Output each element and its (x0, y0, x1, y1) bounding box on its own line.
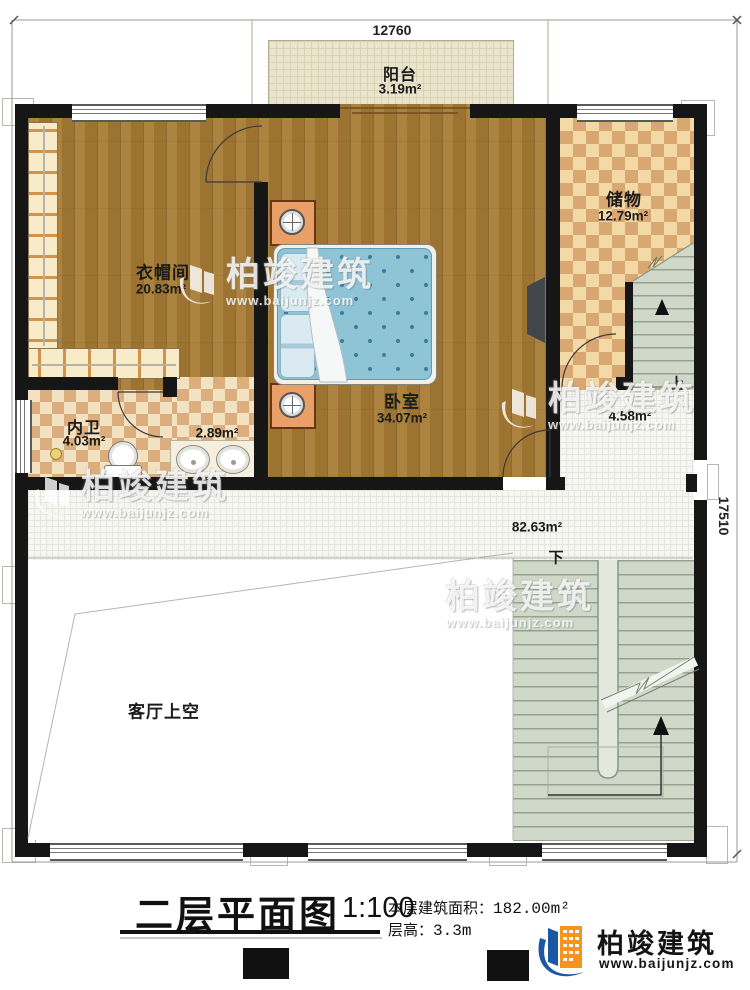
window (542, 843, 667, 861)
room-area-bathroom: 4.03m² (63, 434, 106, 449)
living-void-area (28, 560, 513, 840)
floor-area-label: 本层建筑面积： (388, 900, 493, 917)
floor-area-value: 182.00m² (493, 900, 570, 918)
wall (15, 118, 28, 400)
footer-black-square (243, 948, 289, 979)
stair-down-label: 下 (548, 547, 563, 568)
wall-stair-stub (625, 282, 633, 390)
room-area-hall: 82.63m² (512, 520, 562, 535)
floor-height-label: 层高： (388, 922, 433, 939)
wall (694, 118, 707, 460)
sink (176, 445, 210, 474)
room-label-storage: 储物 (606, 186, 642, 211)
dimension-top: 12760 (373, 22, 412, 38)
wall-stub (163, 377, 177, 397)
title-block: 二层平面图 1:100 本层建筑面积：182.00m² 层高：3.3m 柏竣建筑… (0, 880, 750, 990)
room-label-void: 客厅上空 (128, 698, 200, 723)
lamp-icon (279, 392, 305, 418)
room-area-storage: 12.79m² (598, 209, 648, 224)
floor-drain (50, 448, 62, 460)
wall (15, 104, 72, 118)
stair-up-label: 上 (669, 373, 684, 394)
vanity-counter (170, 440, 256, 479)
wall-bedroom-storage (546, 104, 560, 490)
wall (467, 843, 542, 857)
tv (527, 277, 545, 343)
floor-height-value: 3.3m (433, 922, 471, 940)
wall (470, 104, 577, 118)
landing-floor (560, 388, 694, 490)
brand-logo-icon (536, 920, 592, 982)
pillow (280, 253, 315, 312)
window (15, 400, 32, 473)
title-underline-thin (120, 937, 382, 939)
wall-cloakroom-bedroom (254, 182, 268, 477)
wall (15, 473, 28, 857)
wardrobe-bottom (28, 348, 180, 379)
wall (694, 500, 707, 857)
nightstand-bottom (270, 383, 316, 429)
floor-plan-drawing: 阳台 3.19m² 储物 12.79m² 衣帽间 20.83m² 卧室 34.0… (0, 0, 750, 880)
hall-floor (28, 490, 694, 560)
room-area-landing: 4.58m² (609, 409, 652, 424)
wall (206, 104, 340, 118)
window (577, 104, 673, 122)
sink (216, 445, 250, 474)
wall-pier (686, 474, 697, 492)
main-staircase (513, 560, 694, 841)
room-label-bedroom: 卧室 (384, 388, 420, 413)
wall-stub (548, 477, 565, 490)
column-marker (707, 464, 719, 500)
wall (15, 843, 50, 857)
room-label-cloakroom: 衣帽间 (136, 259, 190, 284)
lamp-icon (279, 209, 305, 235)
wall (673, 104, 707, 118)
room-area-bedroom: 34.07m² (377, 411, 427, 426)
footer-black-square (487, 950, 529, 981)
title-underline (120, 930, 380, 934)
brand-url: www.baijunjz.com (599, 956, 735, 971)
room-area-cloakroom: 20.83m² (136, 282, 186, 297)
wall (243, 843, 308, 857)
room-area-balcony: 3.19m² (379, 82, 422, 97)
wall-hall (15, 477, 503, 490)
window (72, 104, 206, 122)
wall-bathroom (15, 377, 118, 390)
column-marker (706, 826, 728, 864)
dimension-right: 17510 (716, 497, 732, 536)
floor-plan-page: 阳台 3.19m² 储物 12.79m² 衣帽间 20.83m² 卧室 34.0… (0, 0, 750, 990)
wall (667, 843, 707, 857)
bed (273, 244, 437, 385)
room-area-vanity: 2.89m² (196, 426, 239, 441)
window (50, 843, 243, 861)
window (308, 843, 467, 861)
nightstand-top (270, 200, 316, 246)
wardrobe-left (28, 122, 58, 350)
pillow (280, 314, 315, 378)
